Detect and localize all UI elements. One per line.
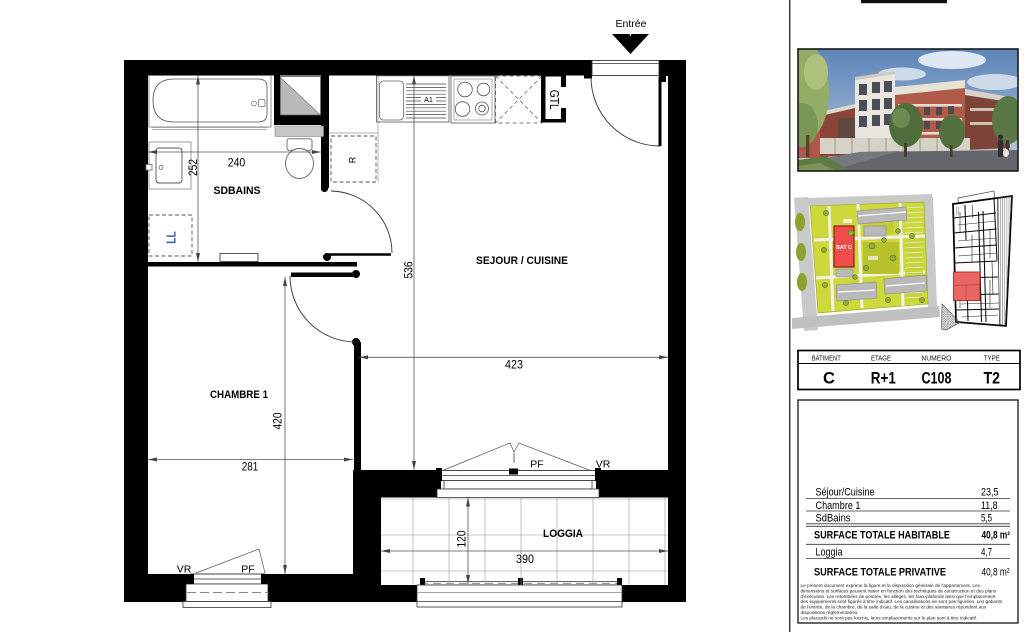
svg-text:SURFACE TOTALE HABITABLE: SURFACE TOTALE HABITABLE bbox=[814, 530, 950, 542]
svg-text:240: 240 bbox=[228, 156, 246, 170]
svg-text:NUMERO: NUMERO bbox=[921, 354, 951, 363]
svg-text:SURFACE TOTALE PRIVATIVE: SURFACE TOTALE PRIVATIVE bbox=[814, 567, 946, 579]
svg-text:40,8 m²: 40,8 m² bbox=[982, 567, 1010, 579]
svg-text:ETAGE: ETAGE bbox=[871, 354, 891, 363]
svg-text:Séjour/Cuisine: Séjour/Cuisine bbox=[816, 487, 875, 499]
svg-text:de l'entrée, de la chambre, de: de l'entrée, de la chambre, de la salle … bbox=[801, 605, 987, 610]
svg-text:dispositions réglementaires.: dispositions réglementaires. bbox=[801, 610, 859, 615]
svg-text:R+1: R+1 bbox=[871, 370, 896, 388]
svg-text:390: 390 bbox=[516, 552, 534, 566]
svg-text:281: 281 bbox=[242, 460, 259, 474]
svg-text:T2: T2 bbox=[984, 370, 1001, 388]
svg-text:A1: A1 bbox=[424, 95, 433, 104]
svg-text:23,5: 23,5 bbox=[981, 487, 999, 499]
svg-text:5,5: 5,5 bbox=[981, 513, 992, 525]
svg-text:CHAMBRE 1: CHAMBRE 1 bbox=[210, 389, 268, 401]
svg-text:BATIMENT: BATIMENT bbox=[812, 354, 841, 363]
svg-text:LL: LL bbox=[164, 231, 179, 244]
svg-text:Loggia: Loggia bbox=[816, 547, 843, 559]
svg-text:4,7: 4,7 bbox=[981, 547, 992, 559]
svg-text:252: 252 bbox=[186, 159, 200, 176]
svg-text:LOGGIA: LOGGIA bbox=[543, 528, 583, 540]
svg-text:PF: PF bbox=[530, 459, 543, 471]
svg-text:Les placards ne sont pas fourn: Les placards ne sont pas fournis, leurs … bbox=[801, 615, 978, 620]
svg-text:120: 120 bbox=[455, 530, 469, 547]
svg-text:R: R bbox=[348, 156, 358, 163]
svg-text:BAT C: BAT C bbox=[836, 245, 852, 251]
svg-text:Le présent document exprime la: Le présent document exprime la figure et… bbox=[801, 583, 981, 588]
svg-text:PF: PF bbox=[241, 564, 254, 576]
svg-text:C: C bbox=[823, 370, 835, 388]
svg-text:SEJOUR / CUISINE: SEJOUR / CUISINE bbox=[476, 255, 568, 267]
svg-text:d'exécution. Les retombées de: d'exécution. Les retombées de poutres, l… bbox=[801, 594, 997, 599]
svg-text:SDBAINS: SDBAINS bbox=[214, 185, 261, 197]
svg-text:VR: VR bbox=[177, 564, 192, 576]
svg-text:420: 420 bbox=[271, 412, 285, 429]
svg-text:40,8 m²: 40,8 m² bbox=[982, 530, 1011, 542]
svg-text:Chambre 1: Chambre 1 bbox=[816, 500, 861, 512]
svg-text:VR: VR bbox=[596, 459, 611, 471]
svg-text:C108: C108 bbox=[922, 370, 952, 388]
svg-text:423: 423 bbox=[505, 358, 523, 372]
svg-text:SdBains: SdBains bbox=[816, 513, 852, 525]
svg-text:dimensions et surfaces peuvent: dimensions et surfaces peuvent varier en… bbox=[801, 588, 997, 593]
svg-text:des équipements sont figurés à: des équipements sont figurés à titre ind… bbox=[801, 599, 1003, 604]
svg-text:GTL: GTL bbox=[547, 90, 561, 110]
svg-text:TYPE: TYPE bbox=[984, 354, 1000, 363]
svg-text:11,8: 11,8 bbox=[981, 500, 998, 512]
svg-text:Entrée: Entrée bbox=[616, 18, 647, 30]
svg-text:536: 536 bbox=[402, 261, 416, 278]
